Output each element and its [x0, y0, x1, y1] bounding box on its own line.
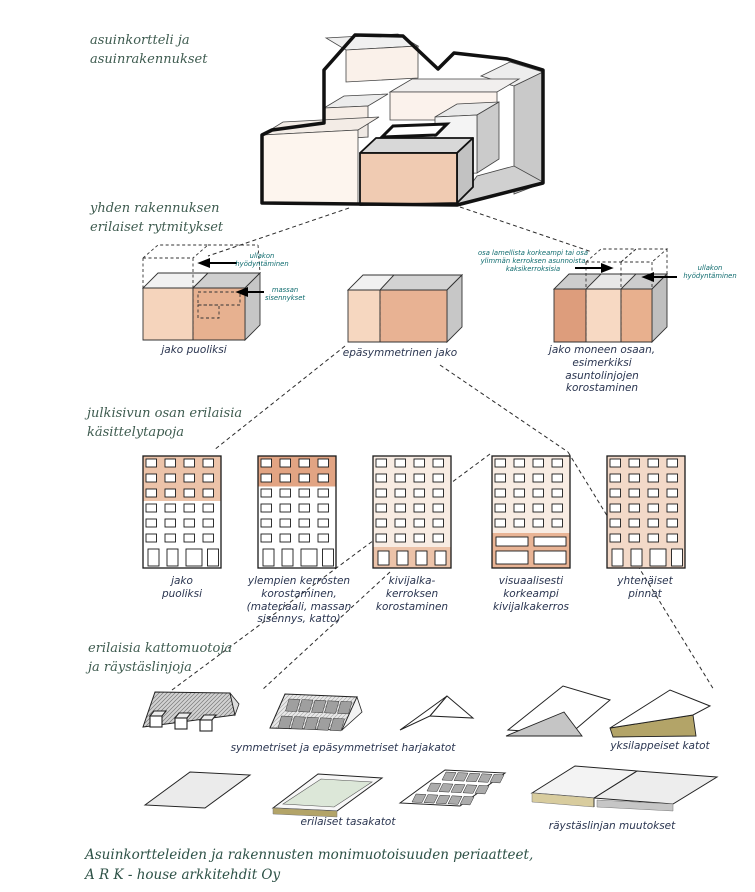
block1-caption: jako puoliksi	[134, 344, 254, 357]
footer-credit: Asuinkortteleiden ja rakennusten monimuo…	[85, 845, 533, 886]
block2-caption: epäsymmetrinen jako	[330, 347, 470, 360]
block1-mass-annotation: massan sisennykset	[263, 286, 307, 302]
flat-roofs-caption: erilaiset tasakatot	[268, 816, 428, 829]
block3-height-annotation: osa lamellista korkeampi tai osa ylimmän…	[474, 249, 592, 273]
eaves-caption: räystäslinjan muutokset	[532, 820, 692, 833]
facade1-caption: jako puoliksi	[122, 575, 242, 601]
facade4-illustration	[491, 455, 571, 569]
diagram-canvas: asuinkortteli ja asuinrakennukset yhden …	[0, 0, 755, 892]
courtyard-opening	[382, 124, 447, 137]
block3-attic-annotation: ullakon hyödyntäminen	[682, 264, 738, 280]
section3-label: julkisivun osan erilaisia käsittelytapoj…	[87, 405, 242, 443]
facade1-illustration	[142, 455, 222, 569]
section4-label: erilaisia kattomuotoja ja räystäslinjoja	[88, 640, 232, 678]
block1-attic-annotation: ullakon hyödyntäminen	[233, 252, 291, 268]
block2-illustration	[344, 272, 466, 352]
mono-roofs-caption: yksilappeiset katot	[590, 740, 730, 753]
section1-label: asuinkortteli ja asuinrakennukset	[90, 32, 207, 70]
section2-label: yhden rakennuksen erilaiset rytmitykset	[90, 200, 223, 238]
gable-roofs-caption: symmetriset ja epäsymmetriset harjakatot	[203, 742, 483, 755]
facade2-caption: ylempien kerrosten korostaminen, (materi…	[239, 575, 359, 626]
block3-caption: jako moneen osaan, esimerkiksi asuntolin…	[542, 344, 662, 395]
facade5-illustration	[606, 455, 686, 569]
facade2-illustration	[257, 455, 337, 569]
facade3-caption: kivijalka- kerroksen korostaminen	[352, 575, 472, 613]
facade5-caption: yhtenäiset pinnat	[585, 575, 705, 601]
block-massing-illustration	[246, 16, 556, 216]
facade3-illustration	[372, 455, 452, 569]
facade4-caption: visuaalisesti korkeampi kivijalkakerros	[471, 575, 591, 613]
